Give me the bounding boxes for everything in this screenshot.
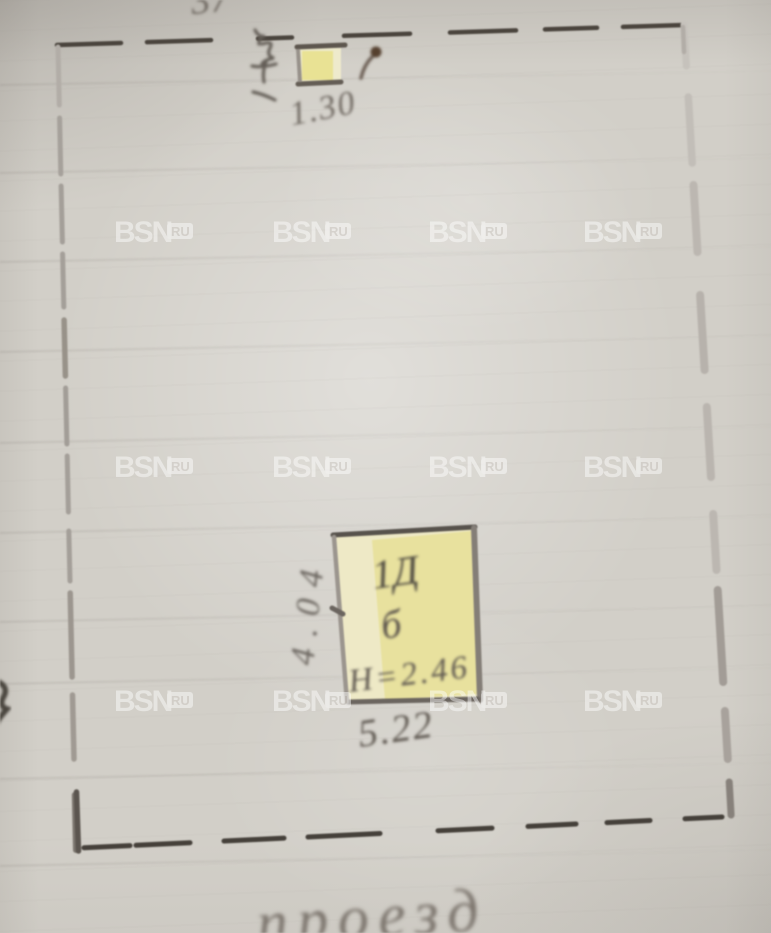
svg-text:BSN: BSN [272, 451, 330, 484]
svg-text:RU: RU [485, 693, 504, 708]
svg-text:RU: RU [485, 459, 504, 474]
svg-text:BSN: BSN [428, 216, 486, 249]
svg-text:BSN: BSN [114, 685, 172, 718]
svg-text:BSN: BSN [428, 451, 486, 484]
svg-text:RU: RU [329, 459, 348, 474]
svg-text:RU: RU [329, 693, 348, 708]
svg-text:BSN: BSN [583, 685, 641, 718]
svg-text:BSN: BSN [583, 216, 641, 249]
svg-text:BSN: BSN [583, 451, 641, 484]
svg-text:BSN: BSN [272, 685, 330, 718]
svg-text:RU: RU [171, 459, 190, 474]
svg-text:RU: RU [640, 693, 659, 708]
svg-text:RU: RU [329, 224, 348, 239]
svg-text:RU: RU [640, 459, 659, 474]
svg-text:RU: RU [171, 693, 190, 708]
svg-text:BSN: BSN [428, 685, 486, 718]
svg-text:RU: RU [640, 224, 659, 239]
svg-text:BSN: BSN [114, 451, 172, 484]
svg-text:BSN: BSN [272, 216, 330, 249]
svg-text:RU: RU [485, 224, 504, 239]
svg-text:RU: RU [171, 224, 190, 239]
svg-text:BSN: BSN [114, 216, 172, 249]
